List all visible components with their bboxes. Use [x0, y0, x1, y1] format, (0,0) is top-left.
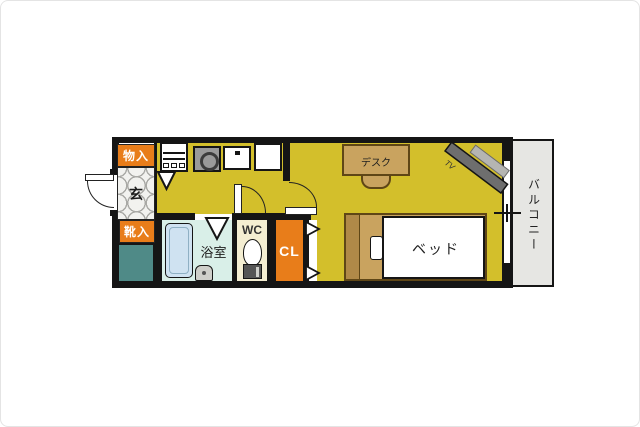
closet-fold-mark-bottom	[306, 266, 319, 280]
lineart-overlay: TV	[0, 0, 640, 427]
floor-plan-image: バルコニー 物入 玄 靴入 浴室 WC	[0, 0, 640, 427]
tv-label: TV	[443, 158, 457, 172]
tv-unit: TV	[437, 133, 515, 204]
laundry-opening-mark	[158, 172, 175, 189]
closet-fold-mark-top	[306, 222, 319, 236]
bathroom-opening-mark	[206, 218, 228, 239]
